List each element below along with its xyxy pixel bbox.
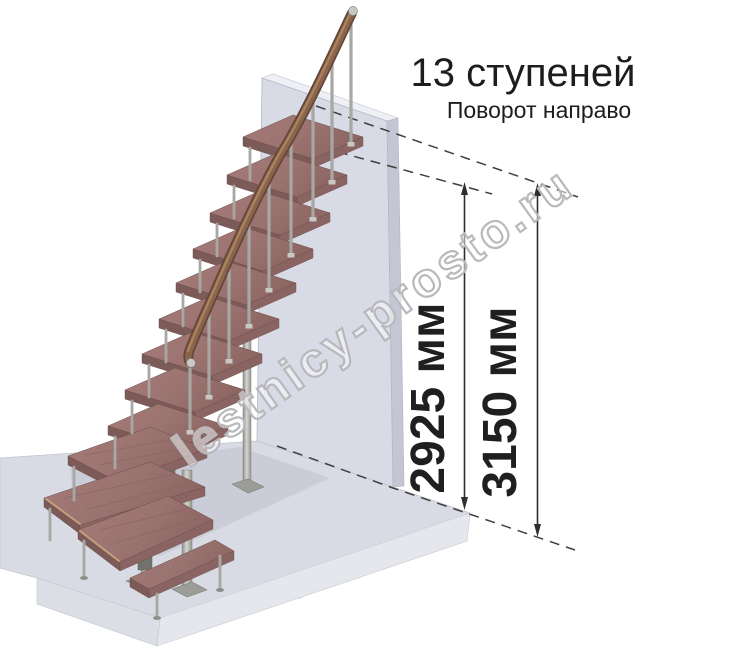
dimension-label-3150: 3150 мм xyxy=(474,306,527,497)
handrail-top-cap xyxy=(349,7,358,16)
staircase-diagram-page: 2925 мм 3150 мм lestnicy-prosto.ru 13 ст… xyxy=(0,0,744,655)
dimension-label-2925: 2925 мм xyxy=(402,302,455,493)
staircase-diagram: 2925 мм 3150 мм lestnicy-prosto.ru 13 ст… xyxy=(0,0,744,655)
handrail-end-cap xyxy=(187,359,196,368)
diagram-title: 13 ступеней xyxy=(411,51,636,95)
diagram-subtitle: Поворот направо xyxy=(447,97,631,123)
